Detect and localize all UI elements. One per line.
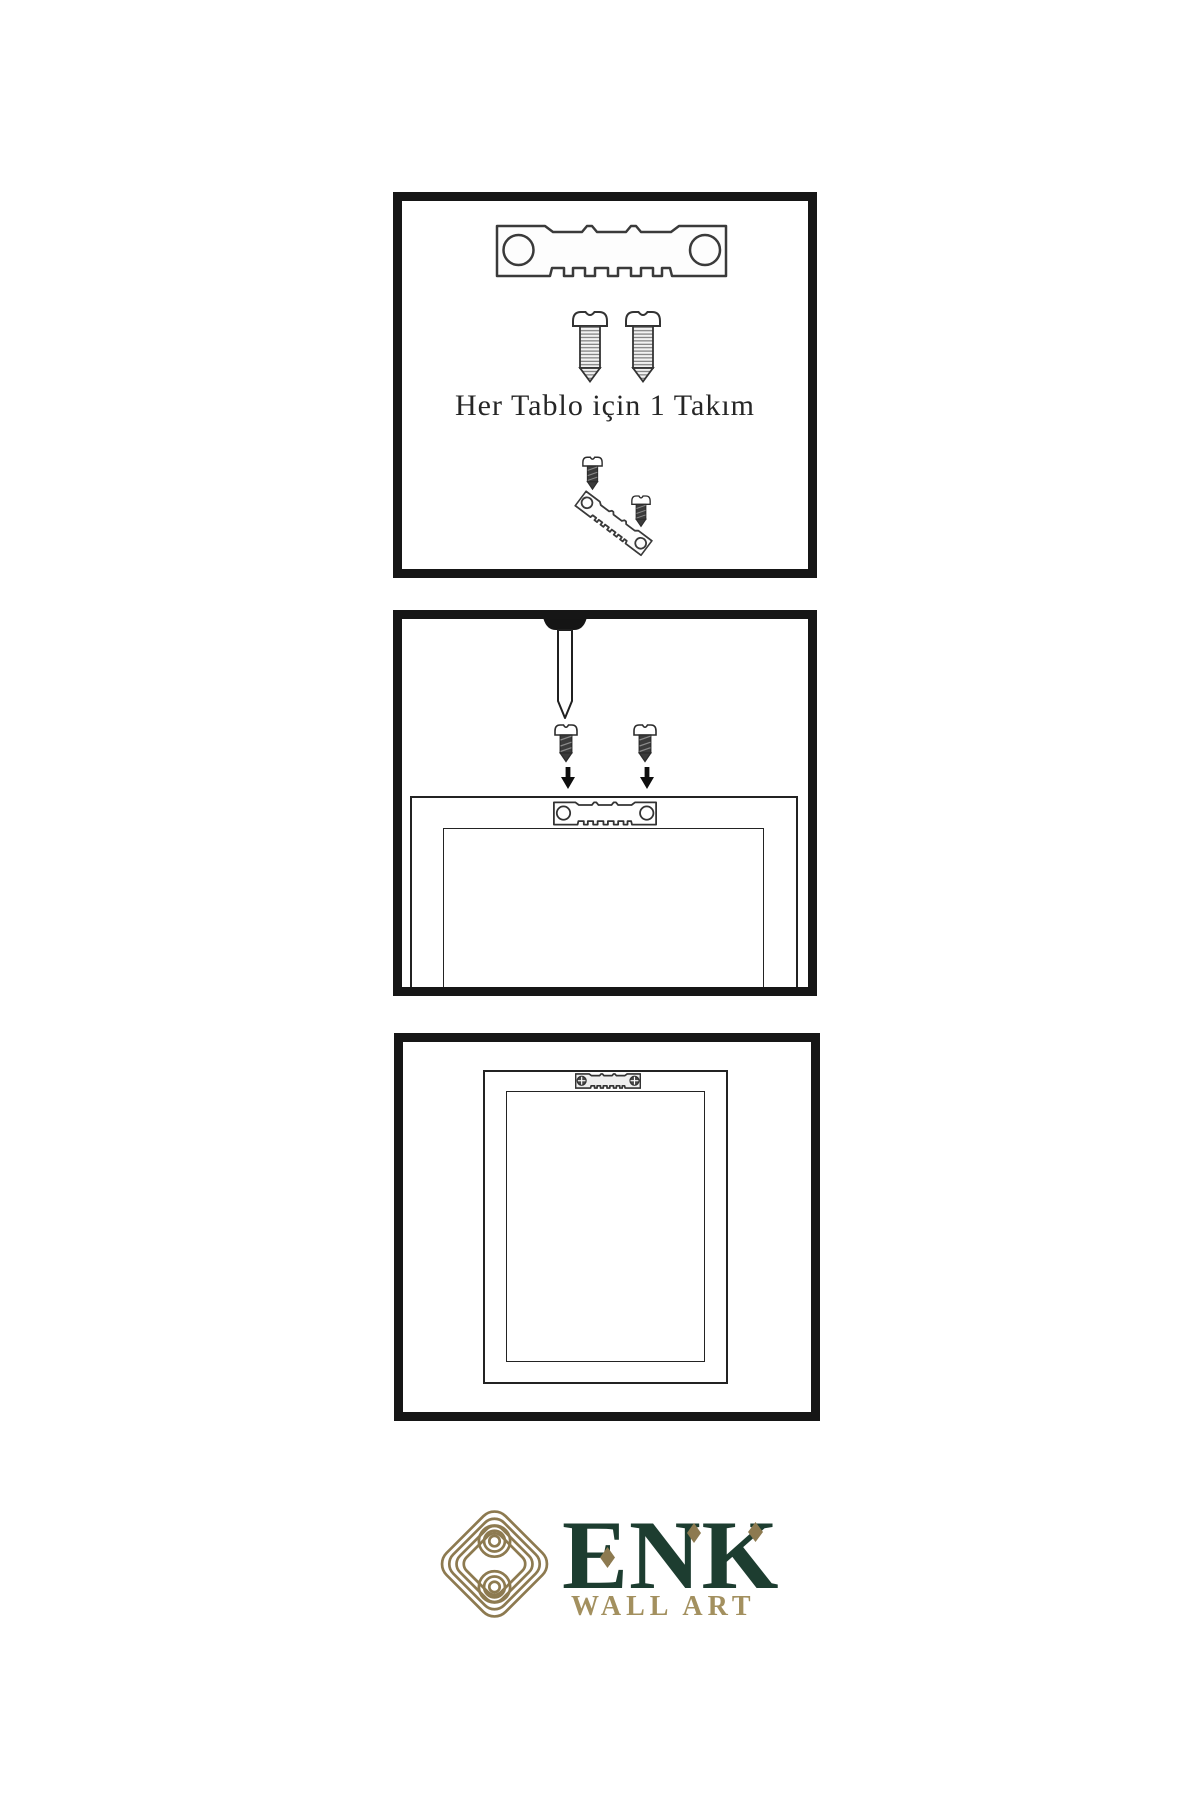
panel-kit-contents: Her Tablo için 1 Takım bbox=[393, 192, 817, 578]
sawtooth-hanger-icon bbox=[495, 224, 728, 278]
screw-icon bbox=[625, 309, 661, 383]
hanger-with-screws-icon bbox=[576, 450, 660, 554]
sawtooth-hanger-icon bbox=[553, 801, 657, 826]
panel-attach-hanger bbox=[393, 610, 817, 996]
instruction-sheet: Her Tablo için 1 Takım bbox=[0, 0, 1200, 1800]
kit-label: Her Tablo için 1 Takım bbox=[402, 387, 808, 425]
screw-dark-icon bbox=[554, 723, 578, 763]
panel-mounted-frame bbox=[394, 1033, 820, 1421]
frame-back-inner-edge bbox=[443, 828, 764, 996]
screw-dark-icon bbox=[631, 493, 651, 529]
screw-dark-icon bbox=[633, 723, 657, 763]
wall-nail-icon bbox=[541, 617, 589, 719]
down-arrow-icon bbox=[561, 767, 575, 789]
down-arrow-icon bbox=[640, 767, 654, 789]
screw-dark-icon bbox=[582, 454, 603, 492]
brand-subtitle: WALL ART bbox=[571, 1592, 831, 1622]
frame-back-inner-edge bbox=[506, 1091, 705, 1362]
sawtooth-hanger-screwed-icon bbox=[575, 1072, 641, 1090]
screw-icon bbox=[572, 309, 608, 383]
knot-icon bbox=[432, 1498, 557, 1630]
